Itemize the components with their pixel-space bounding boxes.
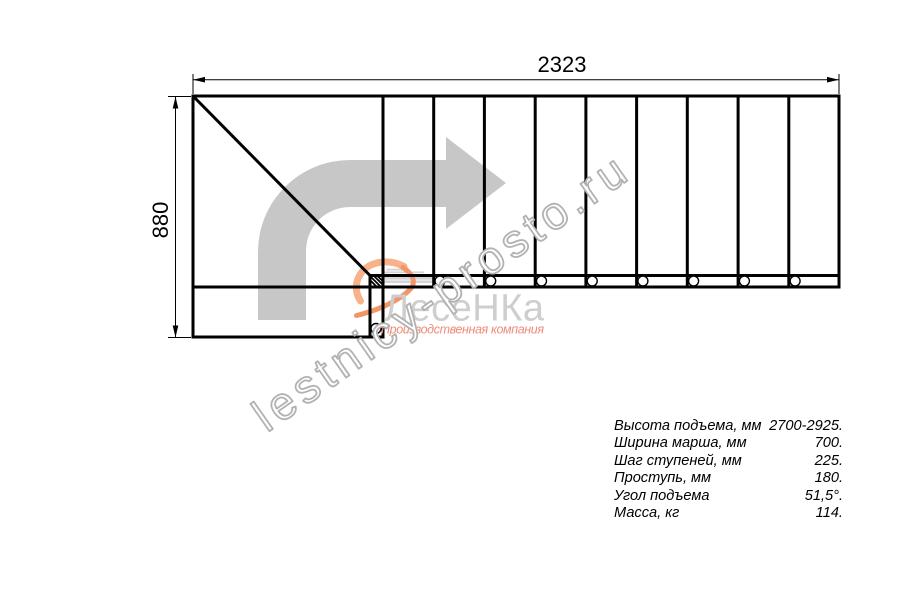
- svg-text:2323: 2323: [538, 52, 587, 77]
- svg-text:880: 880: [148, 202, 173, 239]
